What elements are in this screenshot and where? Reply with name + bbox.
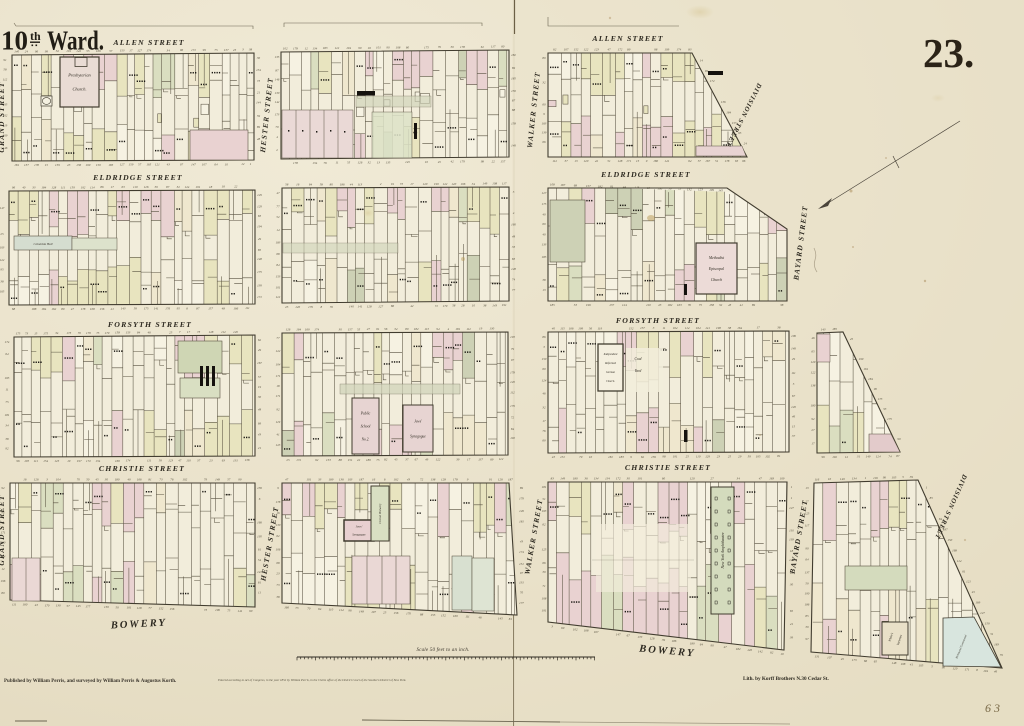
svg-text:108: 108 bbox=[396, 46, 401, 50]
svg-text:64: 64 bbox=[805, 558, 809, 562]
svg-text:148: 148 bbox=[892, 661, 897, 665]
svg-text:184: 184 bbox=[868, 377, 873, 381]
svg-text:22: 22 bbox=[492, 159, 496, 163]
svg-text:192: 192 bbox=[832, 455, 837, 459]
svg-text:Church: Church bbox=[711, 278, 722, 282]
svg-text:129: 129 bbox=[705, 455, 710, 459]
svg-text:111: 111 bbox=[465, 615, 470, 619]
svg-text:28: 28 bbox=[461, 304, 465, 308]
svg-text:179: 179 bbox=[443, 304, 448, 308]
svg-text:43: 43 bbox=[35, 603, 39, 607]
svg-text:69: 69 bbox=[542, 439, 546, 443]
svg-text:166: 166 bbox=[284, 605, 289, 609]
svg-text:46: 46 bbox=[811, 336, 815, 340]
svg-text:88: 88 bbox=[339, 458, 343, 462]
svg-text:Public: Public bbox=[360, 411, 371, 415]
svg-text:73: 73 bbox=[295, 606, 299, 610]
svg-text:126: 126 bbox=[34, 478, 39, 482]
svg-text:18: 18 bbox=[276, 384, 280, 388]
svg-text:122: 122 bbox=[584, 48, 589, 52]
svg-text:127: 127 bbox=[120, 163, 125, 167]
svg-text:48: 48 bbox=[512, 235, 516, 239]
svg-text:66: 66 bbox=[864, 659, 868, 663]
svg-text:67: 67 bbox=[627, 634, 631, 638]
svg-text:129: 129 bbox=[811, 360, 816, 364]
svg-text:30: 30 bbox=[105, 478, 109, 482]
svg-text:166: 166 bbox=[657, 186, 662, 190]
svg-text:53: 53 bbox=[883, 407, 887, 411]
svg-text:89: 89 bbox=[542, 56, 546, 60]
svg-text:38: 38 bbox=[780, 303, 784, 307]
svg-text:13: 13 bbox=[647, 186, 651, 190]
svg-text:110: 110 bbox=[133, 185, 138, 189]
svg-text:174: 174 bbox=[146, 49, 151, 53]
svg-text:81: 81 bbox=[509, 617, 513, 621]
svg-text:96: 96 bbox=[822, 455, 826, 459]
svg-text:145: 145 bbox=[498, 616, 503, 620]
svg-text:171: 171 bbox=[191, 48, 196, 52]
svg-text:43: 43 bbox=[552, 455, 556, 459]
svg-text:39: 39 bbox=[790, 636, 794, 640]
svg-text:175: 175 bbox=[424, 45, 429, 49]
svg-text:81: 81 bbox=[777, 454, 781, 458]
svg-text:15: 15 bbox=[45, 163, 49, 167]
svg-text:32: 32 bbox=[368, 160, 372, 164]
svg-text:21: 21 bbox=[258, 446, 262, 450]
svg-text:34: 34 bbox=[167, 48, 171, 52]
svg-text:48: 48 bbox=[258, 408, 262, 412]
svg-text:46: 46 bbox=[792, 415, 796, 419]
svg-text:146: 146 bbox=[511, 144, 516, 148]
svg-text:59: 59 bbox=[748, 454, 752, 458]
svg-text:137: 137 bbox=[609, 303, 614, 307]
svg-text:91: 91 bbox=[610, 185, 614, 189]
svg-text:96: 96 bbox=[883, 476, 887, 480]
svg-text:29: 29 bbox=[738, 454, 742, 458]
svg-text:73: 73 bbox=[25, 332, 29, 336]
svg-text:171: 171 bbox=[276, 394, 281, 398]
svg-text:183: 183 bbox=[323, 46, 328, 50]
svg-text:88: 88 bbox=[420, 612, 424, 616]
svg-text:60: 60 bbox=[501, 45, 505, 49]
svg-text:190: 190 bbox=[434, 182, 439, 186]
svg-text:10: 10 bbox=[425, 160, 429, 164]
svg-text:36: 36 bbox=[585, 477, 589, 481]
svg-text:21: 21 bbox=[257, 91, 261, 95]
svg-text:126: 126 bbox=[519, 509, 524, 513]
svg-text:83: 83 bbox=[551, 477, 555, 481]
svg-text:19: 19 bbox=[479, 327, 483, 331]
svg-text:116: 116 bbox=[815, 478, 820, 482]
svg-text:174: 174 bbox=[126, 459, 131, 463]
svg-text:108: 108 bbox=[901, 662, 906, 666]
svg-text:128: 128 bbox=[367, 304, 372, 308]
svg-text:87: 87 bbox=[196, 306, 200, 310]
svg-text:159: 159 bbox=[985, 622, 990, 626]
svg-text:14: 14 bbox=[700, 58, 704, 62]
svg-text:134: 134 bbox=[594, 477, 599, 481]
svg-text:120: 120 bbox=[233, 330, 238, 334]
svg-text:175: 175 bbox=[542, 202, 547, 206]
svg-text:42: 42 bbox=[595, 159, 599, 163]
svg-text:69: 69 bbox=[512, 66, 516, 70]
svg-text:Columbia Hall: Columbia Hall bbox=[33, 242, 52, 246]
svg-text:55: 55 bbox=[347, 161, 351, 165]
svg-text:Jews': Jews' bbox=[356, 525, 363, 529]
svg-text:80: 80 bbox=[330, 182, 334, 186]
svg-text:30: 30 bbox=[627, 477, 631, 481]
svg-text:46: 46 bbox=[148, 331, 152, 335]
svg-text:41: 41 bbox=[276, 433, 280, 437]
svg-text:25: 25 bbox=[686, 455, 690, 459]
svg-text:191: 191 bbox=[673, 455, 678, 459]
svg-text:87: 87 bbox=[896, 454, 900, 458]
svg-text:58: 58 bbox=[285, 183, 289, 187]
svg-text:15: 15 bbox=[34, 331, 38, 335]
svg-text:179: 179 bbox=[519, 497, 524, 501]
svg-text:25: 25 bbox=[233, 48, 237, 52]
svg-text:18: 18 bbox=[209, 185, 213, 189]
svg-text:49: 49 bbox=[258, 237, 262, 241]
svg-text:180: 180 bbox=[366, 458, 371, 462]
svg-text:34: 34 bbox=[5, 424, 9, 428]
svg-text:22: 22 bbox=[357, 458, 361, 462]
svg-text:153: 153 bbox=[120, 49, 125, 53]
svg-text:185: 185 bbox=[832, 327, 837, 331]
svg-text:76: 76 bbox=[542, 429, 546, 433]
svg-text:81: 81 bbox=[148, 478, 152, 482]
svg-text:77: 77 bbox=[276, 205, 280, 209]
svg-text:137: 137 bbox=[805, 570, 810, 574]
svg-text:GRAND STREET: GRAND STREET bbox=[0, 81, 6, 152]
svg-text:73: 73 bbox=[276, 583, 280, 587]
svg-text:107: 107 bbox=[827, 656, 832, 660]
svg-text:145: 145 bbox=[718, 188, 723, 192]
svg-text:48: 48 bbox=[222, 306, 226, 310]
svg-text:112: 112 bbox=[510, 390, 515, 394]
svg-text:119: 119 bbox=[598, 326, 603, 330]
svg-text:New York Amphitheatre: New York Amphitheatre bbox=[721, 532, 725, 569]
svg-text:62: 62 bbox=[258, 338, 262, 342]
svg-text:ELDRIDGE STREET: ELDRIDGE STREET bbox=[92, 173, 183, 182]
svg-text:12: 12 bbox=[305, 46, 309, 50]
svg-text:150: 150 bbox=[104, 605, 109, 609]
svg-text:174: 174 bbox=[5, 340, 10, 344]
svg-text:128: 128 bbox=[51, 185, 56, 189]
svg-text:96: 96 bbox=[16, 459, 20, 463]
svg-text:69: 69 bbox=[258, 421, 262, 425]
svg-text:130: 130 bbox=[56, 604, 61, 608]
svg-text:179: 179 bbox=[105, 331, 110, 335]
svg-text:47: 47 bbox=[285, 478, 289, 482]
svg-text:180: 180 bbox=[653, 159, 658, 163]
svg-text:107: 107 bbox=[202, 162, 207, 166]
svg-text:80: 80 bbox=[1, 591, 5, 595]
svg-text:64: 64 bbox=[700, 642, 704, 646]
svg-text:199: 199 bbox=[709, 188, 714, 192]
svg-text:136: 136 bbox=[339, 478, 344, 482]
svg-text:181: 181 bbox=[542, 485, 547, 489]
svg-text:88: 88 bbox=[512, 108, 516, 112]
svg-text:17: 17 bbox=[467, 457, 471, 461]
svg-text:34: 34 bbox=[737, 477, 741, 481]
svg-text:92: 92 bbox=[5, 447, 9, 451]
svg-text:55: 55 bbox=[357, 327, 361, 331]
svg-text:165: 165 bbox=[146, 163, 151, 167]
svg-text:122: 122 bbox=[436, 458, 441, 462]
svg-text:37: 37 bbox=[197, 458, 201, 462]
svg-text:173: 173 bbox=[66, 331, 71, 335]
svg-text:98: 98 bbox=[662, 455, 666, 459]
svg-text:144: 144 bbox=[256, 101, 261, 105]
svg-text:123: 123 bbox=[698, 188, 703, 192]
svg-text:142: 142 bbox=[275, 100, 280, 104]
svg-text:178: 178 bbox=[276, 500, 281, 504]
svg-text:19: 19 bbox=[67, 459, 71, 463]
svg-text:123: 123 bbox=[276, 443, 281, 447]
svg-text:34: 34 bbox=[394, 327, 398, 331]
svg-text:131: 131 bbox=[519, 580, 524, 584]
svg-text:141: 141 bbox=[154, 307, 159, 311]
svg-text:92: 92 bbox=[811, 417, 815, 421]
svg-text:89: 89 bbox=[61, 307, 65, 311]
svg-text:171: 171 bbox=[257, 295, 262, 299]
svg-text:185: 185 bbox=[550, 303, 555, 307]
svg-text:60: 60 bbox=[542, 367, 546, 371]
svg-text:66: 66 bbox=[542, 140, 546, 144]
svg-text:102: 102 bbox=[765, 454, 770, 458]
svg-text:67: 67 bbox=[792, 394, 796, 398]
svg-text:16: 16 bbox=[23, 478, 27, 482]
svg-text:166: 166 bbox=[233, 306, 238, 310]
svg-text:33: 33 bbox=[512, 245, 516, 249]
svg-text:33: 33 bbox=[318, 478, 322, 482]
svg-text:189: 189 bbox=[329, 478, 334, 482]
svg-text:141: 141 bbox=[238, 609, 243, 613]
svg-text:99: 99 bbox=[238, 478, 242, 482]
svg-text:148: 148 bbox=[359, 609, 364, 613]
svg-text:85: 85 bbox=[258, 248, 262, 252]
svg-text:190: 190 bbox=[805, 592, 810, 596]
svg-text:153: 153 bbox=[126, 331, 131, 335]
svg-text:Synagogue: Synagogue bbox=[352, 533, 366, 537]
svg-text:49: 49 bbox=[127, 478, 131, 482]
svg-text:172: 172 bbox=[710, 79, 715, 83]
svg-text:79: 79 bbox=[204, 478, 208, 482]
svg-text:136: 136 bbox=[76, 163, 81, 167]
svg-text:157: 157 bbox=[208, 306, 213, 310]
svg-text:58: 58 bbox=[3, 68, 7, 72]
svg-text:60: 60 bbox=[542, 103, 546, 107]
svg-text:182: 182 bbox=[414, 327, 419, 331]
svg-text:Church.: Church. bbox=[72, 87, 86, 92]
svg-text:No 2.: No 2. bbox=[361, 437, 370, 441]
svg-text:37: 37 bbox=[792, 434, 796, 438]
svg-text:th: th bbox=[30, 29, 41, 43]
svg-text:45: 45 bbox=[438, 160, 442, 164]
svg-text:76: 76 bbox=[688, 303, 692, 307]
svg-text:111: 111 bbox=[61, 185, 66, 189]
svg-text:141: 141 bbox=[358, 305, 363, 309]
svg-text:30: 30 bbox=[257, 56, 261, 60]
svg-text:166: 166 bbox=[137, 478, 142, 482]
svg-text:105: 105 bbox=[919, 663, 924, 667]
svg-text:72: 72 bbox=[420, 478, 424, 482]
svg-text:30: 30 bbox=[339, 327, 343, 331]
svg-text:184: 184 bbox=[41, 307, 46, 311]
svg-text:154: 154 bbox=[43, 459, 48, 463]
svg-text:70: 70 bbox=[78, 331, 82, 335]
svg-text:57: 57 bbox=[258, 375, 262, 379]
svg-text:16: 16 bbox=[368, 46, 372, 50]
svg-text:175: 175 bbox=[257, 270, 262, 274]
svg-text:86: 86 bbox=[391, 304, 395, 308]
svg-text:110: 110 bbox=[696, 455, 701, 459]
svg-text:196: 196 bbox=[1, 579, 6, 583]
svg-text:79: 79 bbox=[511, 347, 515, 351]
svg-text:76: 76 bbox=[170, 478, 174, 482]
svg-text:162: 162 bbox=[394, 478, 399, 482]
svg-text:191: 191 bbox=[789, 528, 794, 532]
svg-text:147: 147 bbox=[616, 633, 621, 637]
svg-text:179: 179 bbox=[460, 160, 465, 164]
svg-text:68: 68 bbox=[574, 184, 578, 188]
svg-text:84: 84 bbox=[276, 263, 280, 267]
svg-text:Presbyterian: Presbyterian bbox=[67, 73, 91, 78]
svg-text:45: 45 bbox=[95, 478, 99, 482]
svg-text:23.: 23. bbox=[923, 30, 974, 76]
svg-text:89: 89 bbox=[520, 486, 524, 490]
svg-text:178: 178 bbox=[510, 371, 515, 375]
svg-text:GRAND STREET: GRAND STREET bbox=[0, 494, 6, 565]
svg-text:196: 196 bbox=[586, 303, 591, 307]
svg-text:Ward.: Ward. bbox=[47, 26, 104, 56]
svg-text:161: 161 bbox=[127, 606, 132, 610]
svg-text:59: 59 bbox=[257, 114, 261, 118]
svg-text:111: 111 bbox=[34, 459, 39, 463]
svg-text:114: 114 bbox=[685, 326, 690, 330]
svg-text:Scale 50 feet to an inch.: Scale 50 feet to an inch. bbox=[416, 648, 469, 653]
svg-text:34: 34 bbox=[55, 331, 59, 335]
svg-text:134: 134 bbox=[95, 459, 100, 463]
svg-text:152: 152 bbox=[574, 48, 579, 52]
svg-text:137: 137 bbox=[478, 457, 483, 461]
svg-text:140: 140 bbox=[349, 305, 354, 309]
svg-text:167: 167 bbox=[257, 361, 262, 365]
svg-text:13: 13 bbox=[542, 288, 546, 292]
svg-text:134: 134 bbox=[605, 477, 610, 481]
svg-text:70: 70 bbox=[307, 607, 311, 611]
svg-text:181: 181 bbox=[608, 455, 613, 459]
svg-text:30: 30 bbox=[451, 45, 455, 49]
svg-text:68: 68 bbox=[12, 307, 16, 311]
svg-text:197: 197 bbox=[371, 610, 376, 614]
svg-text:194: 194 bbox=[346, 46, 351, 50]
svg-text:90: 90 bbox=[358, 46, 362, 50]
svg-text:169: 169 bbox=[975, 601, 980, 605]
svg-text:181: 181 bbox=[455, 327, 460, 331]
svg-text:92: 92 bbox=[1, 486, 5, 490]
svg-text:90: 90 bbox=[805, 546, 809, 550]
svg-text:73: 73 bbox=[197, 330, 201, 334]
svg-text:157: 157 bbox=[500, 159, 505, 163]
svg-text:172: 172 bbox=[296, 458, 301, 462]
svg-text:40: 40 bbox=[22, 186, 26, 190]
svg-text:12: 12 bbox=[1, 567, 5, 571]
svg-text:10: 10 bbox=[472, 304, 476, 308]
svg-text:150: 150 bbox=[511, 89, 516, 93]
svg-text:74: 74 bbox=[512, 277, 516, 281]
svg-text:Independent: Independent bbox=[603, 353, 618, 356]
svg-text:143: 143 bbox=[121, 307, 126, 311]
svg-text:107: 107 bbox=[564, 48, 569, 52]
svg-text:79: 79 bbox=[1000, 653, 1004, 657]
svg-text:148: 148 bbox=[257, 257, 262, 261]
svg-text:86: 86 bbox=[100, 185, 104, 189]
svg-text:56: 56 bbox=[384, 327, 388, 331]
svg-text:120: 120 bbox=[295, 305, 300, 309]
svg-text:21: 21 bbox=[111, 307, 115, 311]
svg-text:98: 98 bbox=[654, 48, 658, 52]
svg-text:87: 87 bbox=[275, 68, 279, 72]
svg-text:16: 16 bbox=[222, 185, 226, 189]
svg-text:153: 153 bbox=[276, 274, 281, 278]
svg-text:178: 178 bbox=[460, 45, 465, 49]
svg-text:137: 137 bbox=[224, 48, 229, 52]
svg-text:12: 12 bbox=[241, 162, 245, 166]
svg-text:79: 79 bbox=[438, 45, 442, 49]
svg-text:199: 199 bbox=[578, 327, 583, 331]
svg-text:45: 45 bbox=[841, 657, 845, 661]
svg-text:127: 127 bbox=[137, 49, 142, 53]
svg-text:46: 46 bbox=[542, 392, 546, 396]
svg-text:13: 13 bbox=[574, 159, 578, 163]
svg-text:159: 159 bbox=[70, 185, 75, 189]
svg-text:17: 17 bbox=[757, 326, 761, 330]
svg-text:133: 133 bbox=[542, 242, 547, 246]
svg-text:127: 127 bbox=[789, 506, 794, 510]
svg-text:141: 141 bbox=[705, 326, 710, 330]
svg-text:95: 95 bbox=[177, 307, 181, 311]
svg-text:69: 69 bbox=[561, 626, 565, 630]
svg-text:58: 58 bbox=[452, 304, 456, 308]
svg-text:131: 131 bbox=[560, 455, 565, 459]
svg-text:186: 186 bbox=[805, 602, 810, 606]
svg-text:164: 164 bbox=[737, 326, 742, 330]
svg-text:136: 136 bbox=[721, 100, 726, 104]
svg-text:63: 63 bbox=[222, 458, 226, 462]
svg-text:186: 186 bbox=[340, 182, 345, 186]
svg-text:156: 156 bbox=[100, 307, 105, 311]
svg-text:32: 32 bbox=[177, 185, 181, 189]
svg-text:60: 60 bbox=[662, 477, 666, 481]
svg-text:71: 71 bbox=[435, 304, 439, 308]
svg-text:70: 70 bbox=[275, 125, 279, 129]
svg-text:50: 50 bbox=[116, 605, 120, 609]
svg-text:162: 162 bbox=[51, 307, 56, 311]
svg-text:193: 193 bbox=[510, 335, 515, 339]
svg-text:ELDRIDGE STREET: ELDRIDGE STREET bbox=[600, 170, 691, 179]
svg-text:57: 57 bbox=[138, 163, 142, 167]
svg-text:Coal: Coal bbox=[635, 357, 642, 361]
svg-text:171: 171 bbox=[626, 159, 631, 163]
svg-text:Yard: Yard bbox=[635, 369, 642, 373]
svg-text:76: 76 bbox=[330, 305, 334, 309]
svg-text:14: 14 bbox=[276, 228, 280, 232]
svg-text:132: 132 bbox=[687, 187, 692, 191]
svg-text:57: 57 bbox=[698, 159, 702, 163]
svg-text:97: 97 bbox=[180, 163, 184, 167]
